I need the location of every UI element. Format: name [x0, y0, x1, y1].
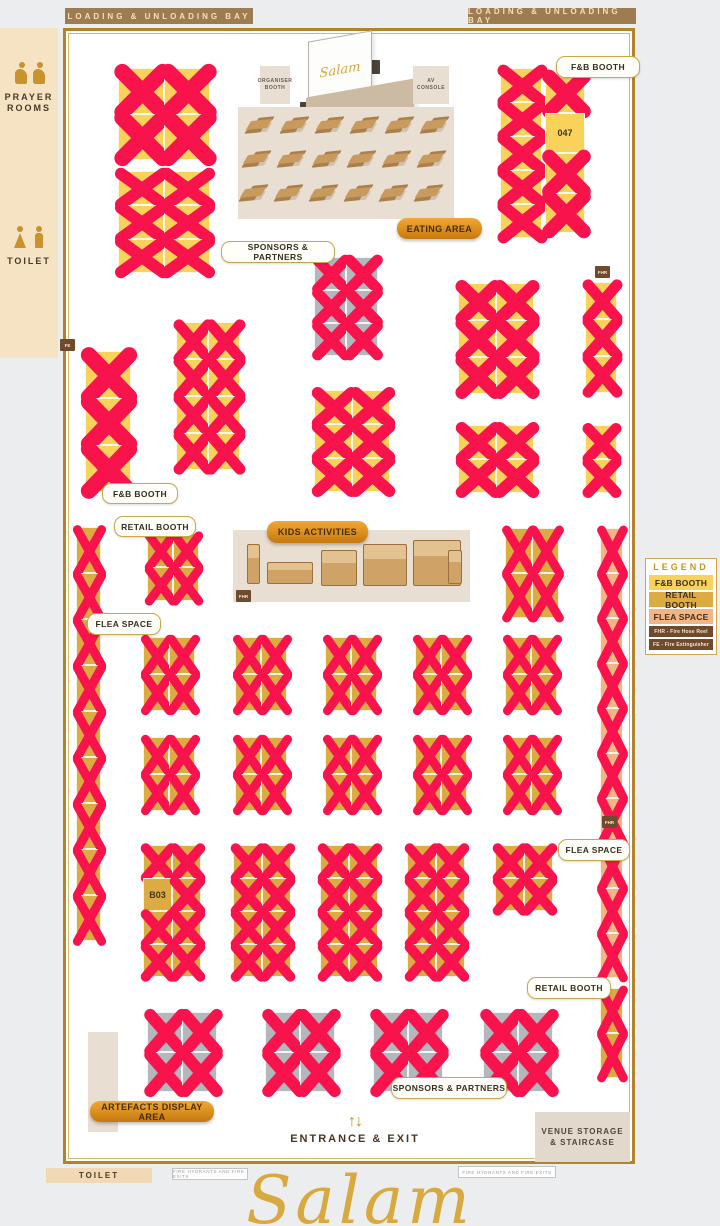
picnic-table — [313, 151, 339, 169]
picnic-table — [240, 185, 266, 203]
booth-cell — [600, 528, 623, 573]
sold-x-mark — [321, 879, 348, 910]
booth-cell — [314, 290, 346, 323]
booth-cell — [600, 933, 623, 978]
picnic-table — [243, 151, 269, 169]
bounce-house-icon — [363, 544, 407, 586]
fire-hose-reel-marker: FHR — [595, 266, 610, 278]
sold-x-mark — [236, 775, 260, 810]
booth-cell — [235, 774, 261, 811]
booth-cell — [531, 674, 557, 711]
booth-cell — [325, 737, 351, 774]
sold-x-mark — [533, 574, 558, 617]
sold-x-mark — [77, 896, 100, 940]
legend-item: F&B BOOTH — [649, 575, 713, 590]
booth-cell — [169, 637, 195, 674]
sold-x-mark — [459, 284, 495, 319]
sold-x-mark — [144, 775, 168, 810]
sold-x-mark — [601, 889, 622, 932]
sold-x-mark — [170, 638, 194, 673]
sold-x-mark — [532, 638, 556, 673]
sold-x-mark — [459, 321, 495, 356]
sold-x-mark — [352, 738, 376, 773]
booth-cell — [483, 1012, 518, 1052]
sold-x-mark — [408, 912, 435, 943]
legend-item: FHR - Fire Hose Reel — [649, 626, 713, 637]
sold-x-mark — [408, 879, 435, 910]
sold-x-mark — [459, 358, 495, 393]
organiser-booth: ORGANISER BOOTH — [260, 66, 290, 104]
booth-cell — [495, 878, 524, 911]
sold-x-mark — [525, 879, 552, 910]
sold-x-mark — [209, 323, 239, 358]
picnic-table — [380, 185, 406, 203]
booth-cell[interactable]: B03 — [143, 878, 172, 911]
sold-x-mark — [170, 675, 194, 710]
sold-x-mark — [374, 1013, 407, 1051]
sold-x-mark — [77, 528, 100, 572]
booth-cell — [261, 637, 287, 674]
booth-cell — [176, 359, 208, 396]
booth-cell — [346, 323, 378, 356]
sold-x-mark — [165, 69, 209, 113]
sold-x-mark — [601, 709, 622, 752]
sold-x-mark — [144, 846, 171, 877]
sold-x-mark — [601, 529, 622, 572]
booth-cell — [531, 774, 557, 811]
legend-title: LEGEND — [648, 562, 714, 572]
booth-cell — [495, 845, 524, 878]
booth-cell — [320, 845, 349, 878]
booth-cell — [147, 1052, 182, 1092]
sold-x-mark — [177, 434, 207, 469]
sold-x-mark — [459, 460, 495, 492]
sold-x-mark — [525, 846, 552, 877]
booth-cell — [531, 637, 557, 674]
booth-cell — [76, 527, 101, 573]
sponsors-partners-label-top: SPONSORS & PARTNERS — [221, 241, 335, 263]
picnic-table — [383, 151, 409, 169]
booth-cell — [500, 170, 542, 204]
female-icon — [13, 226, 27, 252]
sold-x-mark — [416, 775, 440, 810]
booth-cell — [352, 424, 390, 458]
booth-cell — [182, 1012, 217, 1052]
sold-x-mark — [501, 69, 541, 101]
legend-item: FE - Fire Extinguisher — [649, 639, 713, 650]
retail-booth-label-left: RETAIL BOOTH — [114, 516, 196, 537]
booth-cell — [182, 1052, 217, 1092]
sold-x-mark — [148, 534, 172, 566]
sold-x-mark — [496, 846, 523, 877]
booth-cell — [441, 774, 467, 811]
booth-cell — [320, 944, 349, 977]
sold-x-mark — [174, 534, 198, 566]
toilet-icons — [0, 226, 58, 252]
sold-x-mark — [86, 399, 130, 444]
fnb-booth-label-top: F&B BOOTH — [556, 56, 640, 78]
picnic-table — [278, 151, 304, 169]
booth-cell — [118, 114, 164, 160]
booth-cell — [407, 878, 436, 911]
sold-x-mark — [546, 194, 584, 232]
claw-machine-icon — [247, 544, 260, 584]
booth-cell — [531, 737, 557, 774]
booth-cell — [545, 73, 585, 113]
booth-cell — [76, 665, 101, 711]
sold-x-mark — [347, 324, 377, 355]
facilities-panel: PRAYER ROOMS TOILET — [0, 28, 58, 358]
sold-x-mark — [326, 775, 350, 810]
sold-x-mark — [165, 240, 209, 272]
fire-extinguisher-marker: FE — [60, 339, 75, 351]
sold-x-mark — [601, 754, 622, 797]
booth-cell — [143, 845, 172, 878]
booth-cell — [147, 567, 173, 601]
booth-cell — [532, 573, 559, 618]
sold-x-mark — [352, 775, 376, 810]
sold-x-mark — [497, 460, 533, 492]
picnic-table — [345, 185, 371, 203]
booth-cell — [147, 533, 173, 567]
booth-cell — [415, 637, 441, 674]
sold-x-mark — [442, 675, 466, 710]
sold-x-mark — [173, 879, 200, 910]
booth-cell — [500, 102, 542, 136]
booth-cell — [352, 458, 390, 492]
sold-x-mark — [326, 638, 350, 673]
booth-cell — [176, 322, 208, 359]
sold-x-mark — [234, 945, 261, 976]
praying-figure-icon — [32, 62, 45, 86]
sold-x-mark — [586, 460, 616, 492]
sold-x-mark — [532, 675, 556, 710]
booth-cell — [261, 774, 287, 811]
sold-x-mark — [353, 459, 389, 491]
booth-cell — [436, 944, 465, 977]
booth-cell — [496, 357, 534, 394]
footer-toilet-label: TOILET — [46, 1168, 152, 1183]
sponsors-partners-label-bottom: SPONSORS & PARTNERS — [391, 1077, 507, 1099]
booth-cell — [300, 1012, 335, 1052]
booth-cell — [351, 737, 377, 774]
booth-cell — [600, 1033, 623, 1078]
sold-x-mark — [177, 397, 207, 432]
sold-x-mark — [497, 358, 533, 393]
sold-x-mark — [170, 775, 194, 810]
sold-x-mark — [601, 619, 622, 662]
sold-x-mark — [315, 391, 351, 423]
booth-cell — [235, 737, 261, 774]
booth-cell — [172, 911, 201, 944]
sold-x-mark — [350, 912, 377, 943]
sold-x-mark — [347, 258, 377, 289]
booth-cell — [176, 433, 208, 470]
sold-x-mark — [501, 171, 541, 203]
sold-x-mark — [601, 574, 622, 617]
booth-cell — [208, 396, 240, 433]
sold-x-mark — [586, 283, 616, 318]
eating-area-label: EATING AREA — [397, 218, 482, 239]
sold-x-mark — [234, 912, 261, 943]
sold-x-mark — [601, 1034, 622, 1077]
booth-cell — [346, 257, 378, 290]
entrance-exit-label: ENTRANCE & EXIT — [270, 1133, 440, 1145]
sold-x-mark — [77, 712, 100, 756]
sold-x-mark — [408, 846, 435, 877]
booth-cell — [169, 674, 195, 711]
sold-x-mark — [183, 1053, 216, 1091]
booth-cell — [600, 753, 623, 798]
sold-x-mark — [326, 738, 350, 773]
booth-cell — [346, 290, 378, 323]
sold-x-mark — [352, 638, 376, 673]
booth-number: 047 — [546, 114, 584, 152]
av-console: AV CONSOLE — [413, 66, 449, 104]
sold-x-mark — [209, 434, 239, 469]
entrance-exit: ↑↓ ENTRANCE & EXIT — [270, 1114, 440, 1145]
sold-x-mark — [546, 74, 584, 112]
booth-cell — [143, 944, 172, 977]
stage-logo: Salam — [320, 59, 361, 81]
sold-x-mark — [263, 879, 290, 910]
sold-x-mark — [263, 945, 290, 976]
legend-item: FLEA SPACE — [649, 609, 713, 624]
sold-x-mark — [77, 850, 100, 894]
booth-cell — [407, 944, 436, 977]
booth-cell — [262, 911, 291, 944]
sold-x-mark — [496, 879, 523, 910]
booth-cell — [600, 708, 623, 753]
booth-cell — [76, 803, 101, 849]
booth-cell — [265, 1012, 300, 1052]
sold-x-mark — [234, 879, 261, 910]
sold-x-mark — [263, 846, 290, 877]
arcade-machine-icon — [448, 550, 462, 584]
kids-activities-label: KIDS ACTIVITIES — [267, 521, 368, 543]
booth-cell — [314, 458, 352, 492]
booth-cell — [164, 114, 210, 160]
entrance-arrows-icon: ↑↓ — [270, 1114, 440, 1130]
booth-cell — [172, 944, 201, 977]
booth-cell — [518, 1012, 553, 1052]
picnic-table — [386, 117, 412, 135]
sold-x-mark — [409, 1013, 442, 1051]
sold-x-mark — [236, 738, 260, 773]
booth-cell — [505, 637, 531, 674]
booth-cell — [505, 528, 532, 573]
booth-cell — [505, 737, 531, 774]
sold-x-mark — [326, 675, 350, 710]
sold-x-mark — [77, 666, 100, 710]
play-pen-icon — [321, 550, 357, 586]
booth-cell — [262, 878, 291, 911]
booth-cell — [76, 711, 101, 757]
sold-x-mark — [177, 360, 207, 395]
sold-x-mark — [347, 291, 377, 322]
sold-x-mark — [77, 758, 100, 802]
sold-x-mark — [144, 675, 168, 710]
sold-x-mark — [321, 912, 348, 943]
sold-x-mark — [77, 574, 100, 618]
booth-cell — [261, 737, 287, 774]
sold-x-mark — [262, 775, 286, 810]
sold-x-mark — [144, 945, 171, 976]
sold-x-mark — [301, 1013, 334, 1051]
sold-x-mark — [497, 321, 533, 356]
booth-cell — [408, 1012, 443, 1052]
sold-x-mark — [459, 426, 495, 458]
booth-cell — [314, 323, 346, 356]
sold-x-mark — [519, 1053, 552, 1091]
sold-x-mark — [506, 738, 530, 773]
sold-x-mark — [416, 638, 440, 673]
booth-cell — [585, 282, 617, 319]
booth-cell — [352, 390, 390, 424]
booth-cell — [169, 774, 195, 811]
fire-note-left: FIRE HYDRANTS AND FIRE EXITS — [172, 1168, 248, 1180]
sold-x-mark — [119, 172, 163, 204]
booth-cell — [415, 774, 441, 811]
retail-booth-label-right: RETAIL BOOTH — [527, 977, 611, 999]
sold-x-mark — [497, 284, 533, 319]
sold-x-mark — [119, 69, 163, 113]
sold-x-mark — [86, 352, 130, 397]
booth-cell — [458, 320, 496, 357]
booth-cell — [496, 320, 534, 357]
sold-x-mark — [501, 103, 541, 135]
eating-area-zone — [238, 107, 454, 219]
booth-cell — [118, 239, 164, 273]
booth-cell — [118, 68, 164, 114]
sold-x-mark — [353, 391, 389, 423]
booth-cell — [300, 1052, 335, 1092]
booth-cell — [600, 618, 623, 663]
sold-x-mark — [173, 912, 200, 943]
male-icon — [32, 226, 46, 252]
sold-x-mark — [148, 568, 172, 600]
fnb-booth-label-left: F&B BOOTH — [102, 483, 178, 504]
booth-cell — [320, 878, 349, 911]
picnic-table — [418, 151, 444, 169]
picnic-table — [351, 117, 377, 135]
booth-cell — [169, 737, 195, 774]
booth-cell — [76, 849, 101, 895]
booth-cell — [505, 774, 531, 811]
sold-x-mark — [352, 675, 376, 710]
sold-x-mark — [266, 1013, 299, 1051]
praying-figure-icon — [14, 62, 27, 86]
sold-x-mark — [165, 206, 209, 238]
booth-cell — [500, 68, 542, 102]
booth-cell — [143, 911, 172, 944]
fire-hose-reel-marker: FHR — [236, 590, 251, 602]
booth-cell — [505, 573, 532, 618]
sold-x-mark — [173, 846, 200, 877]
booth-cell — [436, 845, 465, 878]
booth-cell — [233, 911, 262, 944]
booth-cell — [143, 674, 169, 711]
sold-x-mark — [353, 425, 389, 457]
booth-cell — [147, 1012, 182, 1052]
booth-cell — [233, 878, 262, 911]
sold-x-mark — [506, 574, 531, 617]
booth-cell — [585, 356, 617, 393]
booth-cell — [143, 637, 169, 674]
sold-x-mark — [165, 172, 209, 204]
booth-cell — [500, 204, 542, 238]
booth-cell — [545, 193, 585, 233]
booth-cell — [261, 674, 287, 711]
booth-cell — [585, 459, 617, 493]
fire-note-right: FIRE HYDRANTS AND FIRE EXITS — [458, 1166, 556, 1178]
sold-x-mark — [442, 775, 466, 810]
sold-x-mark — [119, 206, 163, 238]
sold-x-mark — [144, 638, 168, 673]
booth-cell — [500, 136, 542, 170]
prayer-rooms-label: PRAYER ROOMS — [0, 92, 58, 114]
sold-x-mark — [321, 945, 348, 976]
booth-cell — [173, 533, 199, 567]
sold-x-mark — [416, 738, 440, 773]
booth-cell — [265, 1052, 300, 1092]
picnic-table — [281, 117, 307, 135]
booth-cell — [585, 319, 617, 356]
booth-cell — [407, 911, 436, 944]
booth-cell — [415, 674, 441, 711]
sold-x-mark — [183, 1013, 216, 1051]
booth-cell — [262, 845, 291, 878]
booth-cell — [325, 674, 351, 711]
flea-space-label-left: FLEA SPACE — [87, 613, 161, 635]
booth-cell — [351, 637, 377, 674]
booth-cell — [172, 878, 201, 911]
sold-x-mark — [501, 137, 541, 169]
sold-x-mark — [263, 912, 290, 943]
sold-x-mark — [315, 459, 351, 491]
sold-x-mark — [501, 205, 541, 237]
booth-cell[interactable]: 047 — [545, 113, 585, 153]
sold-x-mark — [437, 912, 464, 943]
booth-cell — [496, 425, 534, 459]
picnic-table — [316, 117, 342, 135]
sandbox-icon — [267, 562, 313, 584]
sold-x-mark — [177, 323, 207, 358]
booth-cell — [585, 425, 617, 459]
booth-cell — [600, 888, 623, 933]
sold-x-mark — [315, 324, 345, 355]
booth-cell — [351, 774, 377, 811]
booth-cell — [441, 737, 467, 774]
booth-cell — [351, 674, 377, 711]
booth-cell — [164, 68, 210, 114]
sold-x-mark — [497, 426, 533, 458]
sold-x-mark — [174, 568, 198, 600]
booth-cell — [233, 944, 262, 977]
booth-cell — [262, 944, 291, 977]
sold-x-mark — [119, 240, 163, 272]
booth-cell — [532, 528, 559, 573]
sold-x-mark — [236, 638, 260, 673]
booth-cell — [233, 845, 262, 878]
sold-x-mark — [236, 675, 260, 710]
booth-cell — [349, 911, 378, 944]
sold-x-mark — [262, 638, 286, 673]
sold-x-mark — [442, 638, 466, 673]
sold-x-mark — [148, 1053, 181, 1091]
sold-x-mark — [586, 357, 616, 392]
fire-hose-reel-marker: FHR — [602, 816, 617, 828]
